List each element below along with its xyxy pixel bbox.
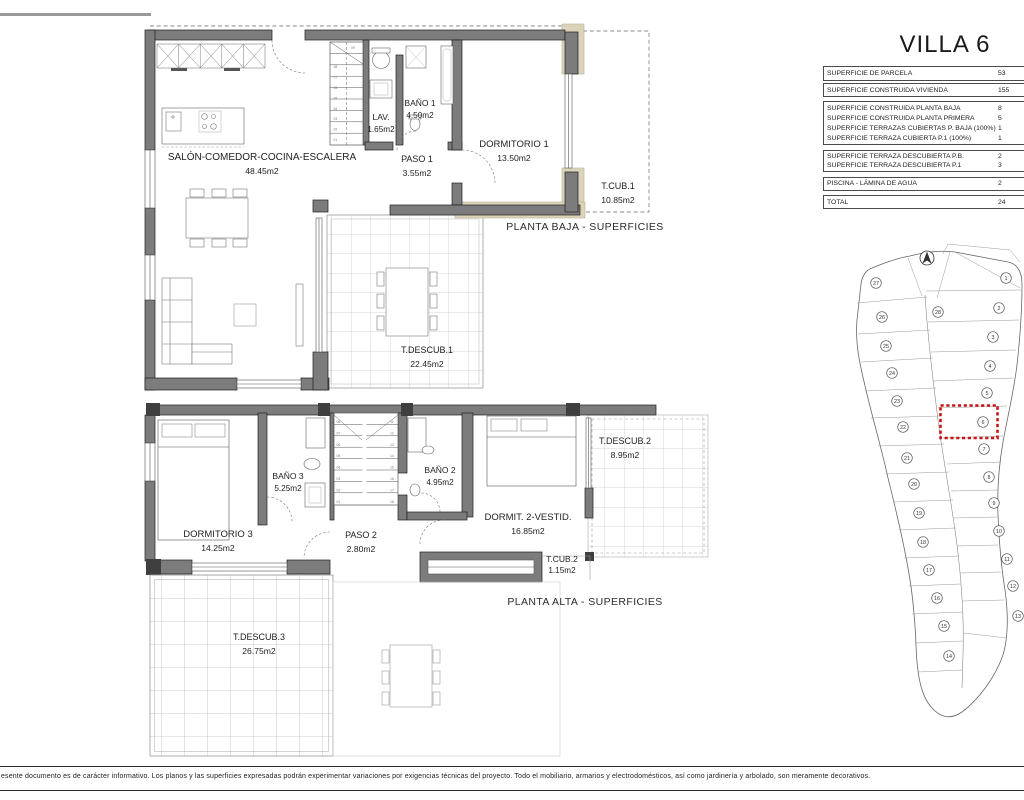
svg-text:07: 07 [337,431,341,435]
svg-text:03: 03 [337,477,341,481]
svg-text:4: 4 [989,364,992,370]
room-label-salon: SALÓN-COMEDOR-COCINA-ESCALERA 48.45m2 [157,150,367,178]
svg-text:06: 06 [337,443,341,447]
svg-text:06: 06 [334,86,338,90]
table-row-label: SUPERFICIE CONSTRUIDA PLANTA PRIMERA [827,115,975,122]
disclaimer-text: esente documento es de carácter informat… [1,773,870,780]
svg-text:05: 05 [337,454,341,458]
svg-text:03: 03 [334,117,338,121]
north-arrow-icon [920,251,934,265]
svg-text:20: 20 [911,482,917,488]
table-row-value: 2 [998,153,1002,160]
bed-dormitorio3-icon [158,420,229,540]
room-label-dormitorio2: DORMIT. 2-VESTID. 16.85m2 [473,511,583,538]
tdescub3-terrace [150,575,560,756]
svg-text:22: 22 [900,425,906,431]
svg-text:16: 16 [390,477,394,481]
table-box-piscina: PISCINA - LÁMINA DE AGUA 2 [823,177,1024,191]
table-row: SUPERFICIE CONSTRUIDA PLANTA BAJA 8 [827,103,1024,113]
svg-text:13: 13 [1015,614,1021,620]
table-row-value: 2 [998,180,1002,187]
table-box-construida: SUPERFICIE CONSTRUIDA PLANTA BAJA 8 SUPE… [823,101,1024,145]
svg-text:04: 04 [334,107,338,111]
table-row: SUPERFICIE TERRAZA DESCUBIERTA P.1 3 [827,161,1024,170]
table-row-value: 1 [998,125,1002,132]
bottom-frame-line-top [0,766,1024,767]
svg-text:9: 9 [993,501,996,507]
room-label-tdescub3: T.DESCUB.3 26.75m2 [219,631,299,657]
svg-text:04: 04 [337,466,341,470]
bottom-frame-line-bottom [0,790,1024,791]
svg-text:7: 7 [983,447,986,453]
svg-text:17: 17 [390,488,394,492]
room-label-tdescub2: T.DESCUB.2 8.95m2 [590,435,660,461]
svg-text:17: 17 [926,568,932,574]
table-row-value: 24 [998,199,1006,206]
svg-text:14: 14 [390,454,394,458]
page-title: VILLA 6 [845,31,1024,59]
svg-text:18: 18 [920,540,926,546]
room-label-dormitorio1: DORMITORIO 1 13.50m2 [466,138,562,165]
svg-text:02: 02 [337,488,341,492]
svg-text:07: 07 [334,76,338,80]
table-row: SUPERFICIE DE PARCELA 53 [827,68,1024,78]
svg-text:12: 12 [1010,584,1016,590]
room-label-tcub1: T.CUB.1 10.85m2 [588,180,648,206]
svg-text:01: 01 [334,138,338,142]
room-label-bano3: BAÑO 3 5.25m2 [263,470,313,495]
svg-text:08: 08 [337,420,341,424]
dining-table-icon [186,189,248,247]
svg-text:14: 14 [946,654,952,660]
siteplan-plot-circles [871,273,1024,662]
room-label-dormitorio3: DORMITORIO 3 14.25m2 [170,528,266,555]
table-row-label: TOTAL [827,199,848,206]
svg-text:26: 26 [879,315,885,321]
table-box-parcela: SUPERFICIE DE PARCELA 53 [823,66,1024,81]
svg-text:24: 24 [889,371,895,377]
kitchen-island-icon [162,108,244,147]
highlighted-plot-6 [941,406,998,439]
svg-text:27: 27 [873,281,879,287]
table-row: SUPERFICIE CONSTRUIDA VIVIENDA 155 [827,85,1024,95]
table-row-label: SUPERFICIE CONSTRUIDA VIVIENDA [827,87,948,94]
bed-dormitorio2-icon [487,416,576,486]
svg-text:09: 09 [351,46,355,50]
table-row-label: SUPERFICIE TERRAZAS CUBIERTAS P. BAJA (1… [827,125,996,132]
svg-text:18: 18 [390,500,394,504]
table-row-value: 5 [998,115,1002,122]
svg-text:23: 23 [894,399,900,405]
table-row-value: 3 [998,162,1002,169]
svg-text:01: 01 [337,500,341,504]
svg-text:11: 11 [390,420,394,424]
table-row-label: SUPERFICIE TERRAZA DESCUBIERTA P.1 [827,162,961,169]
svg-text:16: 16 [934,596,940,602]
table-row-value: 155 [998,87,1009,94]
table-row: SUPERFICIE TERRAZA DESCUBIERTA P.B. 2 [827,152,1024,161]
table-row: PISCINA - LÁMINA DE AGUA 2 [827,179,1024,189]
siteplan-plot-numbers: 123 456 789 101112 131415 161718 192021 … [873,276,1021,660]
room-label-bano2: BAÑO 2 4.95m2 [415,464,465,489]
table-row-label: SUPERFICIE TERRAZA DESCUBIERTA P.B. [827,153,964,160]
table-row-value: 53 [998,70,1006,77]
svg-text:05: 05 [334,96,338,100]
svg-text:2: 2 [998,306,1001,312]
table-row: SUPERFICIE TERRAZAS CUBIERTAS P. BAJA (1… [827,123,1024,133]
room-label-bano1: BAÑO 1 4.50m2 [395,97,445,122]
table-row: SUPERFICIE CONSTRUIDA PLANTA PRIMERA 5 [827,113,1024,123]
table-row-label: SUPERFICIE TERRAZA CUBIERTA P.1 (100%) [827,135,971,142]
siteplan: 123 456 789 101112 131415 161718 192021 … [857,244,1024,717]
svg-text:6: 6 [982,420,985,426]
svg-text:02: 02 [334,128,338,132]
svg-text:10: 10 [996,529,1002,535]
svg-text:25: 25 [883,344,889,350]
svg-text:3: 3 [992,335,995,341]
table-box-descubierta: SUPERFICIE TERRAZA DESCUBIERTA P.B. 2 SU… [823,150,1024,172]
svg-text:8: 8 [988,475,991,481]
table-row-label: SUPERFICIE DE PARCELA [827,70,912,77]
staircase-alta: 08070605 04030201 11121314 15161718 [334,413,398,505]
planta-baja-plan: 010203 040506 070809 [145,24,649,390]
table-row: TOTAL 24 [827,197,1024,207]
svg-text:15: 15 [941,624,947,630]
svg-text:11: 11 [1004,557,1010,563]
svg-text:5: 5 [986,391,989,397]
room-label-tdescub1: T.DESCUB.1 22.45m2 [387,344,467,370]
room-label-paso1: PASO 1 3.55m2 [392,153,442,179]
table-box-vivienda: SUPERFICIE CONSTRUIDA VIVIENDA 155 [823,83,1024,97]
svg-text:13: 13 [390,443,394,447]
svg-text:15: 15 [390,466,394,470]
room-label-paso2: PASO 2 2.80m2 [336,529,386,555]
caption-planta-alta: PLANTA ALTA - SUPERFICIES [505,596,665,608]
svg-text:1: 1 [1005,276,1008,282]
table-row: SUPERFICIE TERRAZA CUBIERTA P.1 (100%) 1 [827,133,1024,143]
svg-text:08: 08 [334,65,338,69]
plan-sheet: 010203 040506 070809 [0,0,1024,800]
caption-planta-baja: PLANTA BAJA - SUPERFICIES [505,221,665,233]
svg-text:28: 28 [935,310,941,316]
table-row-label: SUPERFICIE CONSTRUIDA PLANTA BAJA [827,105,961,112]
table-box-total: TOTAL 24 [823,195,1024,209]
svg-text:21: 21 [904,456,910,462]
svg-text:12: 12 [390,431,394,435]
table-row-value: 8 [998,105,1002,112]
room-label-tcub2: T.CUB.2 1.15m2 [537,554,587,577]
kitchen-cabinets-icon [157,44,265,71]
outdoor-table-icon [377,268,437,336]
sofa-icon [162,278,303,364]
outdoor-table-2-icon [382,645,440,707]
siteplan-divisions-right [926,290,1021,638]
table-row-value: 1 [998,135,1002,142]
table-row-label: PISCINA - LÁMINA DE AGUA [827,180,917,187]
svg-text:19: 19 [916,511,922,517]
